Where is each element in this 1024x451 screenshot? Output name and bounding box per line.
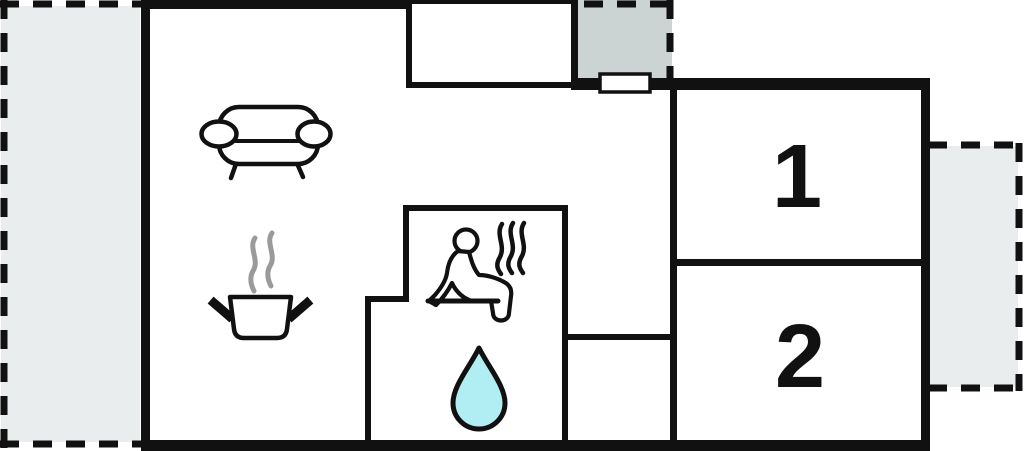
sauna-step-wall bbox=[365, 296, 409, 302]
right-terrace-area bbox=[930, 146, 1018, 387]
pot-steam-icon bbox=[251, 233, 273, 291]
sofa-right-armrest bbox=[298, 122, 331, 147]
niche-left-wall bbox=[406, 0, 412, 88]
pot-right-handle bbox=[292, 303, 307, 316]
cooking-pot-icon bbox=[214, 233, 307, 338]
left-terrace bbox=[0, 0, 141, 448]
bottom-wall bbox=[141, 440, 930, 451]
sauna-top-wall bbox=[403, 205, 568, 211]
sauna-person-icon bbox=[428, 223, 524, 321]
right-terrace bbox=[928, 143, 1022, 391]
sauna-steam-wave bbox=[497, 224, 502, 274]
entrance-porch-area bbox=[577, 0, 672, 78]
sauna-steam-icon bbox=[497, 223, 524, 274]
niche-right-wall bbox=[571, 0, 578, 90]
left-wall bbox=[141, 0, 150, 450]
pot-steam-wave bbox=[268, 233, 273, 286]
niche-top-line bbox=[400, 0, 578, 4]
entrance-porch bbox=[577, 0, 676, 82]
room1-room2-divider-wall bbox=[673, 259, 921, 266]
sofa-icon bbox=[202, 107, 331, 178]
sofa-left-armrest bbox=[202, 122, 237, 147]
sauna-steam-wave bbox=[508, 223, 513, 273]
pot-steam-wave bbox=[251, 238, 256, 291]
pot-left-handle bbox=[214, 303, 229, 316]
sauna-steam-wave bbox=[519, 223, 524, 273]
room-1-label: 1 bbox=[772, 127, 822, 227]
top-wall bbox=[141, 0, 412, 9]
room-2-label: 2 bbox=[775, 307, 825, 407]
sauna-right-wall bbox=[562, 205, 568, 444]
pot-body bbox=[230, 297, 291, 338]
sauna-left-upper-wall bbox=[403, 205, 409, 302]
hall-store-divider-wall bbox=[562, 334, 677, 340]
left-terrace-area bbox=[1, 6, 140, 442]
water-drop-icon bbox=[453, 348, 505, 429]
entrance-door bbox=[600, 74, 650, 92]
sauna-left-lower-wall bbox=[365, 296, 371, 444]
floor-plan: 1 2 bbox=[0, 0, 1024, 451]
right-wall bbox=[921, 78, 930, 451]
niche-bottom-wall bbox=[406, 82, 578, 88]
